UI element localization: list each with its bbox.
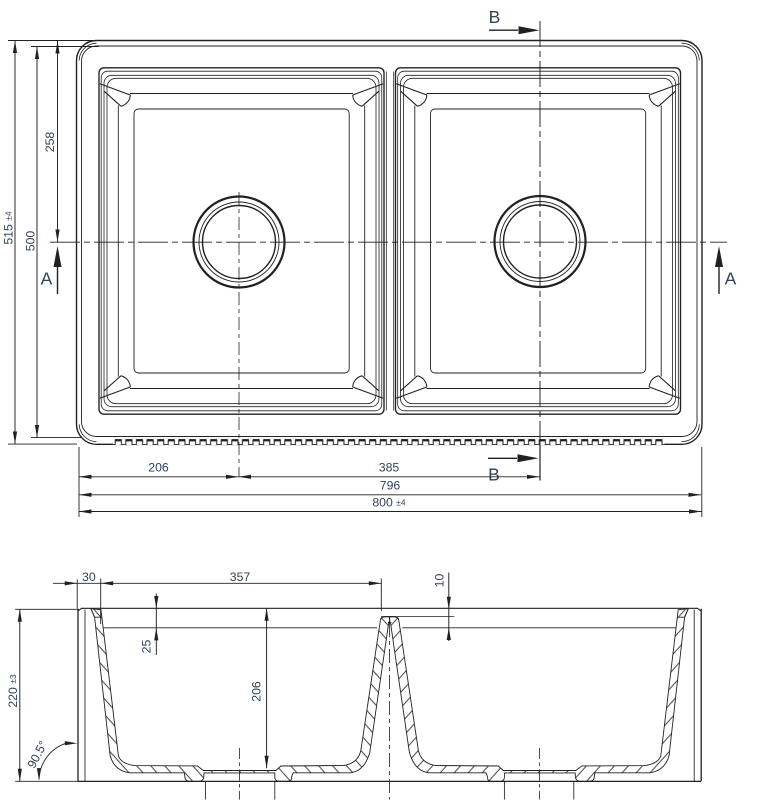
svg-text:A: A: [725, 269, 737, 289]
svg-text:220 ±3: 220 ±3: [6, 674, 20, 708]
svg-text:B: B: [489, 7, 501, 27]
svg-text:90.5°: 90.5°: [25, 738, 51, 770]
svg-text:25: 25: [140, 640, 154, 654]
svg-text:30: 30: [82, 570, 96, 584]
svg-text:515 ±4: 515 ±4: [2, 211, 16, 245]
svg-text:796: 796: [380, 479, 401, 493]
svg-text:A: A: [41, 269, 53, 289]
svg-text:385: 385: [379, 461, 400, 475]
svg-text:800 ±4: 800 ±4: [372, 496, 406, 510]
svg-text:258: 258: [43, 132, 57, 153]
svg-text:10: 10: [433, 574, 447, 588]
svg-text:500: 500: [24, 231, 38, 252]
svg-text:357: 357: [230, 570, 251, 584]
svg-text:206: 206: [148, 461, 169, 475]
svg-text:206: 206: [250, 681, 264, 702]
svg-text:B: B: [488, 465, 500, 485]
